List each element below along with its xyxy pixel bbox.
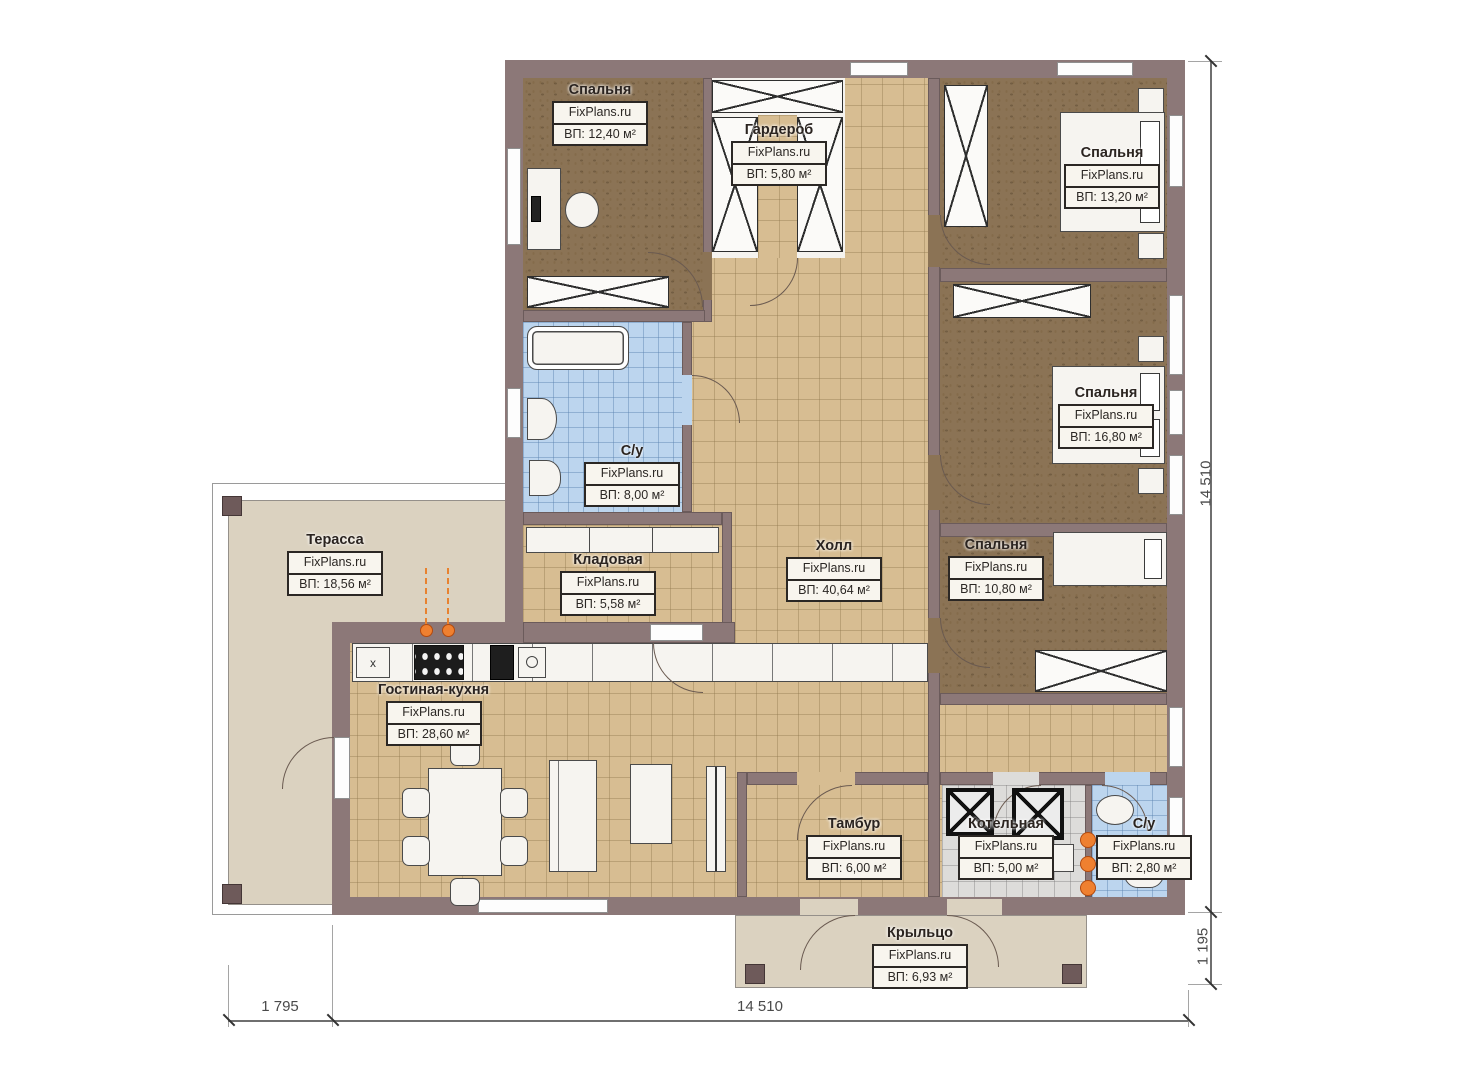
stove-symbol: [414, 645, 464, 680]
kitchen-unit-symbol: x: [356, 647, 390, 678]
room-name: Кладовая: [573, 552, 642, 568]
radiator-icon: [1080, 832, 1096, 848]
room-name: Терасса: [306, 532, 364, 548]
door-opening: [682, 375, 692, 425]
room-label-terrace: Терасса FixPlans.ru ВП: 18,56 м²: [287, 532, 383, 596]
watermark: FixPlans.ru: [560, 571, 656, 595]
wall: [523, 512, 722, 525]
window: [1169, 295, 1183, 375]
room-label-bedroom-br: Спальня FixPlans.ru ВП: 10,80 м²: [948, 537, 1044, 601]
room-area: ВП: 40,64 м²: [786, 581, 882, 603]
column-post: [1062, 964, 1082, 984]
wall: [940, 268, 1167, 282]
watermark: FixPlans.ru: [386, 701, 482, 725]
toilet-symbol: [529, 460, 561, 496]
tv-stand-symbol: [706, 766, 726, 872]
shelf-symbol: [526, 527, 719, 553]
room-name: Спальня: [965, 537, 1028, 553]
room-label-bathroom-small: С/у FixPlans.ru ВП: 2,80 м²: [1096, 816, 1192, 880]
door-opening: [797, 772, 855, 785]
watermark: FixPlans.ru: [1058, 404, 1154, 428]
window: [1169, 455, 1183, 515]
wardrobe-symbol: [1035, 650, 1167, 692]
room-area: ВП: 28,60 м²: [386, 725, 482, 747]
bed-symbol: [1053, 532, 1167, 586]
window: [1169, 390, 1183, 435]
column-post: [745, 964, 765, 984]
watermark: FixPlans.ru: [584, 462, 680, 486]
radiator-icon: [1080, 856, 1096, 872]
watermark: FixPlans.ru: [806, 835, 902, 859]
door-opening: [703, 252, 712, 300]
room-label-vestibule: Тамбур FixPlans.ru ВП: 6,00 м²: [806, 816, 902, 880]
watermark: FixPlans.ru: [731, 141, 827, 165]
dimension-label: 1 195: [1195, 907, 1212, 987]
pendant-light-icon: [442, 624, 455, 637]
column-post: [222, 496, 242, 516]
window: [1169, 707, 1183, 767]
room-area: ВП: 6,00 м²: [806, 859, 902, 881]
room-name: Гардероб: [745, 122, 814, 138]
room-area: ВП: 16,80 м²: [1058, 428, 1154, 450]
room-name: Котельная: [968, 816, 1044, 832]
vent-line: [447, 568, 449, 624]
terrace-door-opening: [334, 737, 350, 799]
oven-symbol: [490, 645, 514, 680]
room-name: Холл: [816, 538, 852, 554]
watermark: FixPlans.ru: [1096, 835, 1192, 859]
door-opening: [993, 772, 1039, 785]
room-name: Спальня: [1081, 145, 1144, 161]
computer-monitor-symbol: [531, 196, 541, 222]
radiator-icon: [1080, 880, 1096, 896]
room-area: ВП: 10,80 м²: [948, 580, 1044, 602]
sofa-symbol: [549, 760, 597, 872]
room-label-wardrobe: Гардероб FixPlans.ru ВП: 5,80 м²: [731, 122, 827, 186]
door-opening: [928, 215, 940, 267]
room-label-storage: Кладовая FixPlans.ru ВП: 5,58 м²: [560, 552, 656, 616]
dimension-line: [228, 1020, 1188, 1022]
chair-symbol: [402, 788, 430, 818]
bathtub-symbol: [527, 326, 629, 370]
watermark: FixPlans.ru: [948, 556, 1044, 580]
window: [850, 62, 908, 76]
sink-symbol: [527, 398, 557, 440]
floor-plan: x ○ Спальня FixPlans.ru ВП: 12,40 м² Гар…: [0, 0, 1473, 1080]
nightstand-symbol: [1138, 88, 1164, 114]
room-label-porch: Крыльцо FixPlans.ru ВП: 6,93 м²: [872, 925, 968, 989]
wall: [523, 622, 735, 643]
nightstand-symbol: [1138, 468, 1164, 494]
wall: [737, 772, 747, 897]
wardrobe-symbol: [953, 284, 1091, 318]
room-name: Спальня: [1075, 385, 1138, 401]
room-name: Гостиная-кухня: [378, 682, 489, 698]
door-opening: [800, 899, 858, 915]
chair-symbol: [450, 878, 480, 906]
room-label-bathroom: С/у FixPlans.ru ВП: 8,00 м²: [584, 443, 680, 507]
wardrobe-symbol: [944, 85, 988, 227]
room-label-bedroom-mr: Спальня FixPlans.ru ВП: 16,80 м²: [1058, 385, 1154, 449]
room-area: ВП: 2,80 м²: [1096, 859, 1192, 881]
room-area: ВП: 5,00 м²: [958, 859, 1054, 881]
window: [478, 899, 608, 913]
nightstand-symbol: [1138, 233, 1164, 259]
dimension-label: 1 795: [235, 998, 325, 1015]
watermark: FixPlans.ru: [552, 101, 648, 125]
door-opening: [947, 899, 1002, 915]
room-area: ВП: 12,40 м²: [552, 125, 648, 147]
room-label-bedroom-tr: Спальня FixPlans.ru ВП: 13,20 м²: [1064, 145, 1160, 209]
nightstand-symbol: [1138, 336, 1164, 362]
window: [507, 148, 521, 245]
watermark: FixPlans.ru: [872, 944, 968, 968]
room-area: ВП: 5,80 м²: [731, 165, 827, 187]
watermark: FixPlans.ru: [786, 557, 882, 581]
kitchen-sink-symbol: [518, 647, 546, 678]
window: [650, 624, 703, 641]
watermark: FixPlans.ru: [287, 551, 383, 575]
chair-symbol: [500, 836, 528, 866]
wall: [523, 310, 705, 322]
room-area: ВП: 18,56 м²: [287, 575, 383, 597]
dimension-label: 14 510: [710, 998, 810, 1015]
window: [1057, 62, 1133, 76]
wardrobe-symbol: [712, 80, 843, 113]
room-label-hall: Холл FixPlans.ru ВП: 40,64 м²: [786, 538, 882, 602]
wall: [940, 693, 1167, 705]
dimension-extension: [1188, 61, 1222, 62]
window: [507, 388, 521, 438]
room-label-bedroom-tl: Спальня FixPlans.ru ВП: 12,40 м²: [552, 82, 648, 146]
room-label-boiler-room: Котельная FixPlans.ru ВП: 5,00 м²: [958, 816, 1054, 880]
room-name: Крыльцо: [887, 925, 953, 941]
vent-line: [425, 568, 427, 624]
room-area: ВП: 5,58 м²: [560, 595, 656, 617]
room-area: ВП: 13,20 м²: [1064, 188, 1160, 210]
room-area: ВП: 8,00 м²: [584, 486, 680, 508]
door-opening: [1105, 772, 1150, 785]
watermark: FixPlans.ru: [1064, 164, 1160, 188]
column-post: [222, 884, 242, 904]
watermark: FixPlans.ru: [958, 835, 1054, 859]
room-name: Спальня: [569, 82, 632, 98]
pillow-symbol: [1144, 539, 1162, 579]
dimension-extension: [332, 925, 333, 1027]
window: [1169, 115, 1183, 187]
room-name: Тамбур: [828, 816, 881, 832]
door-opening: [928, 618, 940, 673]
chair-symbol: [402, 836, 430, 866]
dimension-label: 14 510: [1198, 444, 1215, 524]
drain-icon: [526, 656, 538, 668]
chair-symbol: [500, 788, 528, 818]
coffee-table-symbol: [630, 764, 672, 844]
room-name: С/у: [1133, 816, 1156, 832]
room-label-living-kitchen: Гостиная-кухня FixPlans.ru ВП: 28,60 м²: [378, 682, 489, 746]
dining-table-symbol: [428, 768, 502, 876]
room-area: ВП: 6,93 м²: [872, 968, 968, 990]
pendant-light-icon: [420, 624, 433, 637]
room-name: С/у: [621, 443, 644, 459]
office-chair-symbol: [565, 192, 599, 228]
door-opening: [928, 455, 940, 510]
